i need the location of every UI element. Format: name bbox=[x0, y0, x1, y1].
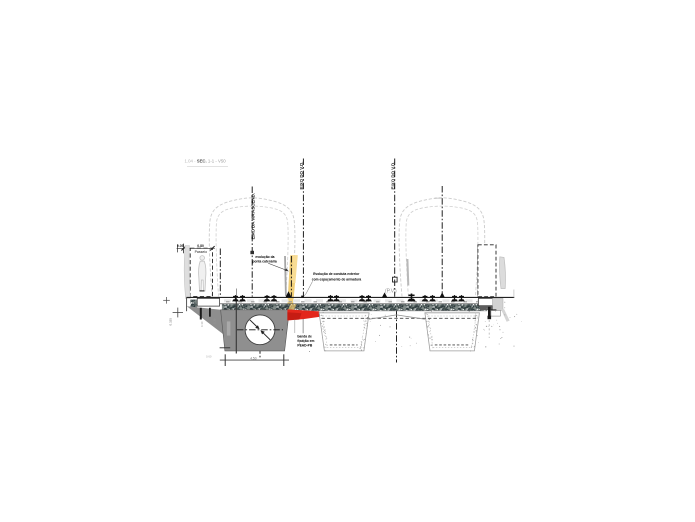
svg-text:ponta catenária: ponta catenária bbox=[252, 259, 277, 263]
svg-text:4.50: 4.50 bbox=[250, 356, 257, 360]
svg-text:1.04 - SEC. 1-1 - V50: 1.04 - SEC. 1-1 - V50 bbox=[185, 159, 227, 164]
svg-text:0.30: 0.30 bbox=[200, 321, 204, 327]
svg-text:0.05: 0.05 bbox=[177, 244, 184, 248]
svg-text:0.80: 0.80 bbox=[197, 244, 204, 248]
svg-text:EIXO DO V.D.: EIXO DO V.D. bbox=[299, 162, 304, 190]
svg-text:evolução da: evolução da bbox=[255, 255, 274, 259]
svg-text:banda de: banda de bbox=[297, 334, 312, 338]
svg-text:Passeio: Passeio bbox=[195, 250, 208, 254]
svg-text:0.60: 0.60 bbox=[206, 355, 212, 359]
svg-text:com espaçamento de armadura: com espaçamento de armadura bbox=[312, 277, 362, 281]
svg-text:EIXO DA VIA ASCEND.: EIXO DA VIA ASCEND. bbox=[251, 193, 257, 240]
svg-text:Evolução de conduta exterior: Evolução de conduta exterior bbox=[313, 272, 360, 276]
svg-text:0.325: 0.325 bbox=[168, 318, 172, 326]
svg-text:PEAD-PB: PEAD-PB bbox=[297, 344, 312, 348]
svg-text:0.30: 0.30 bbox=[212, 318, 216, 324]
svg-text:fixação em: fixação em bbox=[297, 339, 314, 343]
svg-text:(P.V.): (P.V.) bbox=[385, 288, 397, 294]
svg-text:EIXO DO V.D.: EIXO DO V.D. bbox=[390, 162, 395, 190]
